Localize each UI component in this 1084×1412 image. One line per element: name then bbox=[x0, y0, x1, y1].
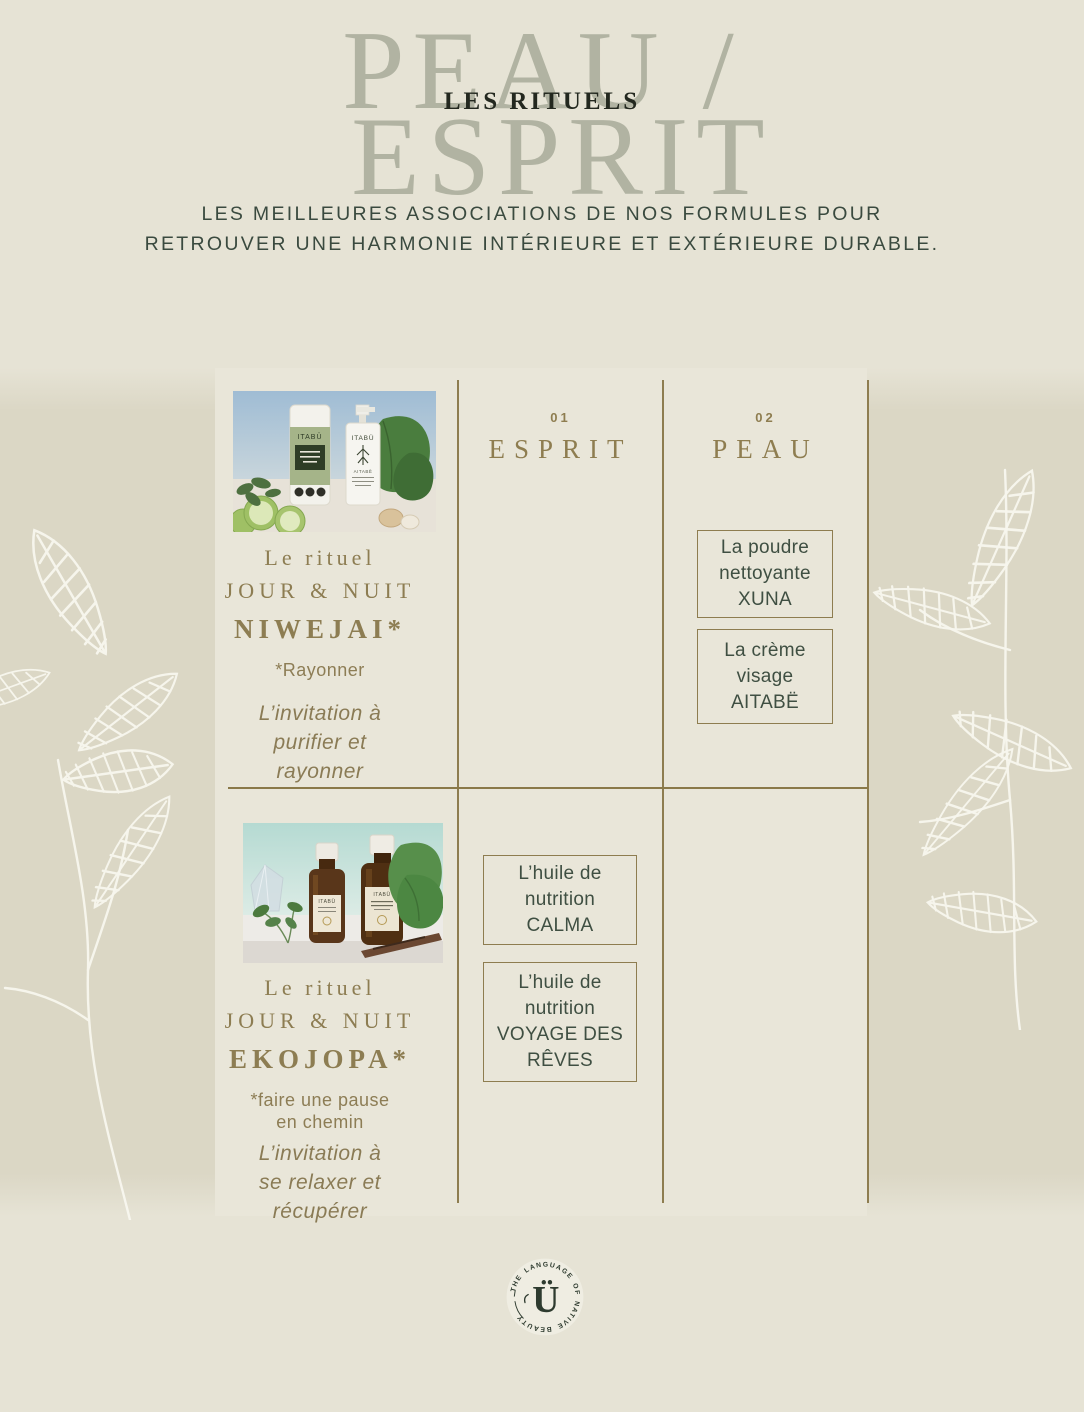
photo-brand-label: ITABÜ bbox=[318, 898, 335, 905]
ritual-variant: JOUR & NUIT bbox=[210, 1005, 430, 1037]
photo-product-label: AITABË bbox=[354, 468, 373, 474]
product-box-label: La crème visage AITABË bbox=[708, 638, 822, 716]
ritual-intro: Le rituel bbox=[210, 973, 430, 1003]
meaning-line: *Rayonner bbox=[210, 659, 430, 681]
invitation-line: L’invitation à bbox=[210, 699, 430, 728]
column-label: ESPRIT bbox=[458, 434, 663, 465]
grid-vline-2 bbox=[662, 380, 664, 1203]
ritual-photo-ekojopa: ITABÜ ITABÜ bbox=[243, 823, 443, 963]
invitation-line: rayonner bbox=[210, 757, 430, 786]
product-box-xuna: La poudre nettoyante XUNA bbox=[697, 530, 833, 618]
ritual-meaning: *faire une pause en chemin bbox=[210, 1089, 430, 1133]
photo-brand-label: ITABÜ bbox=[297, 433, 322, 441]
column-header-esprit: 01 ESPRIT bbox=[458, 410, 663, 465]
subtitle-line: LES MEILLEURES ASSOCIATIONS DE NOS FORMU… bbox=[0, 199, 1084, 229]
ritual-intro: Le rituel bbox=[210, 543, 430, 573]
title-overlay: LES RITUELS bbox=[0, 88, 1084, 116]
leaf-branch-illustration-right bbox=[860, 350, 1084, 1030]
invitation-line: purifier et bbox=[210, 728, 430, 757]
ritual-name: EKOJOPA* bbox=[210, 1041, 430, 1077]
ritual-name: NIWEJAI* bbox=[210, 611, 430, 647]
ritual-photo-niwejai: ITABÜ ITABÜ AITABË bbox=[233, 391, 436, 532]
meaning-line: en chemin bbox=[210, 1111, 430, 1133]
ritual-card-niwejai: Le rituel JOUR & NUIT NIWEJAI* *Rayonner… bbox=[210, 543, 430, 786]
invitation-line: se relaxer et bbox=[210, 1168, 430, 1197]
photo-bottle-powder: ITABÜ bbox=[290, 405, 330, 505]
column-label: PEAU bbox=[663, 434, 868, 465]
page-title-line-2: ESPRIT bbox=[20, 102, 1084, 212]
photo-brand-label: ITABÜ bbox=[352, 434, 375, 442]
column-number: 02 bbox=[663, 410, 868, 425]
ritual-invitation: L’invitation à se relaxer et récupérer bbox=[210, 1139, 430, 1226]
meaning-line: *faire une pause bbox=[210, 1089, 430, 1111]
ritual-card-ekojopa: Le rituel JOUR & NUIT EKOJOPA* *faire un… bbox=[210, 973, 430, 1226]
product-box-aitabe: La crème visage AITABË bbox=[697, 629, 833, 724]
product-box-label: L’huile de nutrition VOYAGE DES RÊVES bbox=[494, 970, 626, 1074]
grid-hline bbox=[228, 787, 868, 789]
leaf-branch-illustration-left bbox=[0, 360, 220, 1220]
product-box-calma: L’huile de nutrition CALMA bbox=[483, 855, 637, 945]
photo-brand-label: ITABÜ bbox=[373, 891, 390, 898]
product-box-label: L’huile de nutrition CALMA bbox=[494, 861, 626, 939]
subtitle-line: RETROUVER UNE HARMONIE INTÉRIEURE ET EXT… bbox=[0, 229, 1084, 259]
ritual-variant: JOUR & NUIT bbox=[210, 575, 430, 607]
ritual-invitation: L’invitation à purifier et rayonner bbox=[210, 699, 430, 786]
logo-monogram: Ü bbox=[532, 1279, 559, 1321]
invitation-line: L’invitation à bbox=[210, 1139, 430, 1168]
grid-vline-1 bbox=[457, 380, 459, 1203]
column-header-peau: 02 PEAU bbox=[663, 410, 868, 465]
product-box-label: La poudre nettoyante XUNA bbox=[708, 535, 822, 613]
ritual-meaning: *Rayonner bbox=[210, 659, 430, 681]
page-subtitle: LES MEILLEURES ASSOCIATIONS DE NOS FORMU… bbox=[0, 199, 1084, 259]
column-number: 01 bbox=[458, 410, 663, 425]
brand-logo: THE LANGUAGE OF NATIVE BEAUTY Ü bbox=[497, 1249, 593, 1345]
product-box-voyage-des-reves: L’huile de nutrition VOYAGE DES RÊVES bbox=[483, 962, 637, 1082]
invitation-line: récupérer bbox=[210, 1197, 430, 1226]
